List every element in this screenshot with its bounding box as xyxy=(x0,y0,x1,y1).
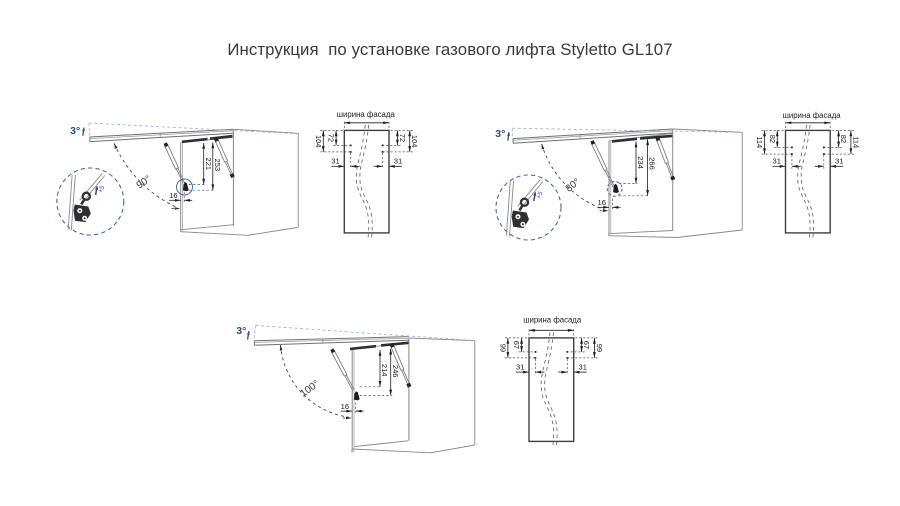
svg-text:ширина фасада: ширина фасада xyxy=(783,111,842,120)
svg-text:Инструкция по установке газов: Инструкция по установке газового лифта S… xyxy=(227,40,672,59)
svg-text:99: 99 xyxy=(499,344,508,352)
svg-text:67: 67 xyxy=(582,341,591,349)
svg-text:67: 67 xyxy=(512,341,521,349)
svg-text:16: 16 xyxy=(597,198,605,207)
svg-text:31: 31 xyxy=(516,362,524,371)
svg-text:80°: 80° xyxy=(564,177,583,195)
svg-text:82: 82 xyxy=(768,135,777,143)
svg-text:104: 104 xyxy=(314,135,323,148)
svg-text:31: 31 xyxy=(394,157,402,166)
svg-text:234: 234 xyxy=(636,156,645,169)
svg-text:3°: 3° xyxy=(70,125,80,137)
svg-text:31: 31 xyxy=(835,157,843,166)
svg-text:ширина фасада: ширина фасада xyxy=(337,110,396,119)
svg-text:266: 266 xyxy=(648,157,657,170)
svg-text:221: 221 xyxy=(204,158,213,171)
svg-text:246: 246 xyxy=(391,365,400,378)
svg-text:3°: 3° xyxy=(495,128,505,140)
svg-text:214: 214 xyxy=(380,364,389,377)
svg-text:114: 114 xyxy=(851,136,860,148)
svg-text:99: 99 xyxy=(595,344,604,352)
svg-text:31: 31 xyxy=(331,157,339,166)
svg-text:16: 16 xyxy=(341,402,349,411)
svg-text:16: 16 xyxy=(169,191,177,200)
svg-text:90°: 90° xyxy=(135,174,154,192)
svg-text:253: 253 xyxy=(213,159,222,172)
svg-text:3°: 3° xyxy=(236,325,246,337)
svg-text:72: 72 xyxy=(327,134,336,142)
svg-text:ширина фасада: ширина фасада xyxy=(523,316,582,325)
svg-text:72: 72 xyxy=(398,134,407,142)
svg-text:82: 82 xyxy=(839,135,848,143)
svg-text:31: 31 xyxy=(578,362,586,371)
svg-text:100°: 100° xyxy=(298,378,321,399)
svg-text:104: 104 xyxy=(410,135,419,148)
svg-text:114: 114 xyxy=(755,136,764,148)
svg-text:31: 31 xyxy=(772,157,780,166)
